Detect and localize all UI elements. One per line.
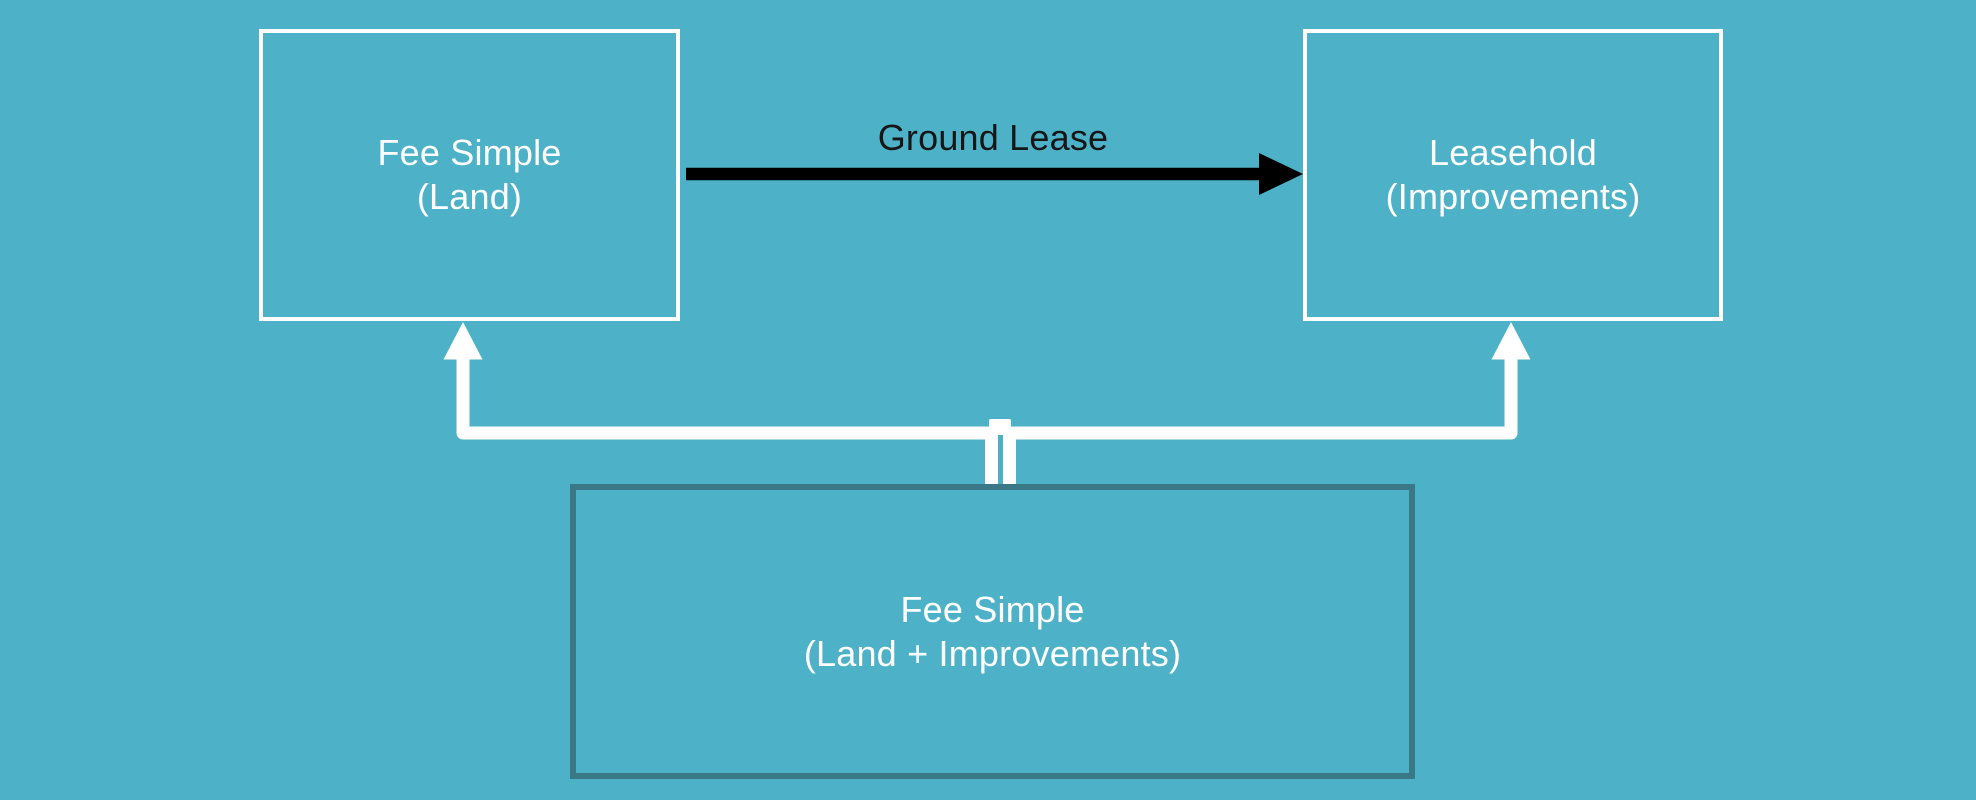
node-label-line2: (Land + Improvements) bbox=[804, 632, 1181, 676]
slide-canvas: Fee Simple (Land) Leasehold (Improvement… bbox=[0, 0, 1976, 800]
connector-junction bbox=[989, 419, 1011, 435]
node-fee-simple-land: Fee Simple (Land) bbox=[259, 29, 680, 321]
ground-lease-label: Ground Lease bbox=[684, 116, 1302, 160]
node-fee-simple-land-improvements: Fee Simple (Land + Improvements) bbox=[570, 484, 1415, 779]
node-label-line1: Fee Simple bbox=[377, 131, 561, 175]
elbow-arrow-to-fee-simple-land bbox=[444, 322, 992, 486]
node-label-line2: (Improvements) bbox=[1386, 175, 1641, 219]
node-label-line1: Fee Simple bbox=[900, 588, 1084, 632]
node-label-line2: (Land) bbox=[417, 175, 522, 219]
elbow-arrow-to-leasehold bbox=[1010, 322, 1531, 486]
node-label-line1: Leasehold bbox=[1429, 131, 1597, 175]
node-leasehold-improvements: Leasehold (Improvements) bbox=[1303, 29, 1723, 321]
